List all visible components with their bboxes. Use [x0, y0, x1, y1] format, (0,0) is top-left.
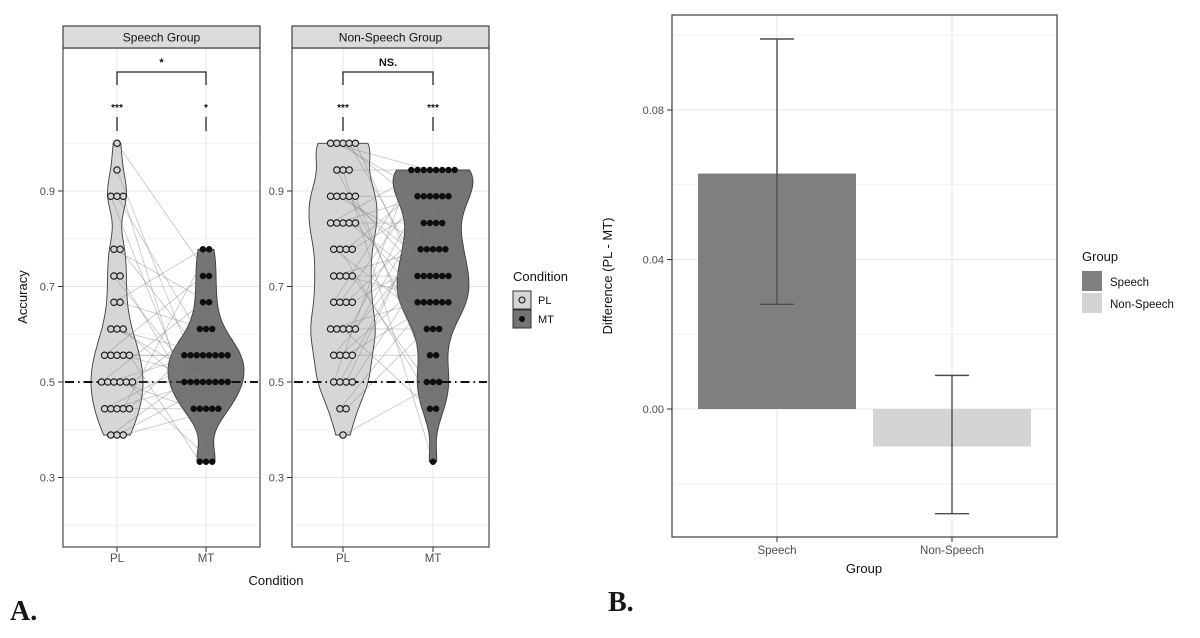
facet-strip-title: Non-Speech Group: [339, 31, 443, 45]
data-point-pl: [108, 432, 114, 438]
data-point-mt: [194, 379, 200, 385]
data-point-mt: [421, 299, 427, 305]
y-tick-label: 0.08: [643, 105, 664, 117]
data-point-mt: [445, 193, 451, 199]
data-point-pl: [337, 299, 343, 305]
data-point-pl: [117, 273, 123, 279]
x-tick-label: PL: [336, 553, 351, 565]
data-point-mt: [421, 193, 427, 199]
data-point-mt: [218, 352, 224, 358]
data-point-pl: [120, 193, 126, 199]
data-point-pl: [114, 326, 120, 332]
x-tick-label: MT: [198, 553, 215, 565]
x-axis: PLMT: [110, 547, 214, 565]
data-point-pl: [337, 246, 343, 252]
data-point-pl: [337, 406, 343, 412]
significance-between-label: NS.: [379, 57, 397, 69]
data-point-mt: [439, 273, 445, 279]
significance-pl-label: ***: [111, 103, 123, 114]
panel-b: 0.000.040.08SpeechNon-SpeechGroupDiffere…: [600, 15, 1174, 576]
legend-key-pl-glyph: [519, 297, 525, 303]
y-tick-label: 0.04: [643, 255, 664, 267]
data-point-mt: [206, 299, 212, 305]
data-point-mt: [439, 193, 445, 199]
data-point-mt: [190, 406, 196, 412]
data-point-pl: [114, 167, 120, 173]
data-point-mt: [421, 273, 427, 279]
data-point-mt: [427, 193, 433, 199]
data-point-pl: [340, 167, 346, 173]
data-point-mt: [430, 246, 436, 252]
data-point-mt: [430, 459, 436, 465]
data-point-pl: [352, 220, 358, 226]
data-point-mt: [436, 379, 442, 385]
data-point-mt: [206, 352, 212, 358]
data-point-pl: [114, 432, 120, 438]
y-axis: 0.000.040.08: [643, 105, 672, 416]
data-point-mt: [427, 352, 433, 358]
data-point-pl: [114, 406, 120, 412]
panel-background: [63, 48, 260, 547]
data-point-pl: [331, 379, 337, 385]
data-point-mt: [436, 246, 442, 252]
data-point-mt: [187, 379, 193, 385]
data-point-mt: [414, 299, 420, 305]
data-point-pl: [337, 352, 343, 358]
data-point-mt: [203, 459, 209, 465]
data-point-pl: [101, 406, 107, 412]
legend-key-speech: [1082, 271, 1102, 291]
y-tick-label: 0.3: [269, 473, 284, 485]
data-point-pl: [114, 352, 120, 358]
x-axis-title-group: Group: [846, 561, 882, 576]
significance-pl-label: ***: [337, 103, 349, 114]
data-point-pl: [334, 220, 340, 226]
data-point-pl: [337, 379, 343, 385]
y-tick-label: 0.5: [269, 377, 284, 389]
data-point-mt: [215, 406, 221, 412]
y-axis: 0.30.50.70.9: [269, 186, 292, 485]
data-point-mt: [187, 352, 193, 358]
data-point-mt: [427, 299, 433, 305]
data-point-mt: [181, 352, 187, 358]
x-axis: PLMT: [336, 547, 441, 565]
data-point-mt: [181, 379, 187, 385]
data-point-pl: [331, 352, 337, 358]
data-point-mt: [421, 220, 427, 226]
significance-mt-label: *: [204, 103, 208, 114]
data-point-mt: [209, 406, 215, 412]
data-point-pl: [126, 406, 132, 412]
y-axis-title-difference: Difference (PL - MT): [600, 217, 615, 334]
y-axis: 0.30.50.70.9: [40, 186, 63, 485]
data-point-pl: [349, 352, 355, 358]
data-point-pl: [334, 326, 340, 332]
y-tick-label: 0.9: [40, 186, 55, 198]
data-point-pl: [111, 299, 117, 305]
data-point-mt: [197, 326, 203, 332]
data-point-mt: [433, 193, 439, 199]
data-point-pl: [346, 220, 352, 226]
data-point-mt: [200, 352, 206, 358]
data-point-mt: [424, 246, 430, 252]
data-point-mt: [200, 379, 206, 385]
data-point-pl: [346, 167, 352, 173]
data-point-mt: [439, 299, 445, 305]
legend-label-mt: MT: [538, 314, 554, 326]
data-point-pl: [108, 406, 114, 412]
data-point-pl: [111, 246, 117, 252]
data-point-pl: [117, 299, 123, 305]
data-point-pl: [120, 326, 126, 332]
data-point-pl: [346, 326, 352, 332]
legend-group-title: Group: [1082, 249, 1118, 264]
data-point-mt: [436, 326, 442, 332]
x-tick-label: PL: [110, 553, 125, 565]
data-point-pl: [349, 299, 355, 305]
data-point-pl: [108, 352, 114, 358]
figure-svg: *****Speech Group0.30.50.70.9PLMTNS.****…: [0, 0, 1200, 638]
facet-strip-title: Speech Group: [123, 31, 201, 45]
data-point-pl: [340, 326, 346, 332]
data-point-mt: [197, 406, 203, 412]
legend-label-pl: PL: [538, 295, 551, 307]
data-point-pl: [108, 326, 114, 332]
data-point-pl: [117, 246, 123, 252]
data-point-pl: [343, 406, 349, 412]
y-tick-label: 0.00: [643, 404, 664, 416]
data-point-pl: [331, 246, 337, 252]
data-point-mt: [452, 167, 458, 173]
data-point-mt: [209, 326, 215, 332]
data-point-pl: [352, 326, 358, 332]
data-point-pl: [108, 193, 114, 199]
data-point-pl: [349, 273, 355, 279]
data-point-mt: [206, 379, 212, 385]
data-point-pl: [123, 379, 129, 385]
data-point-pl: [101, 352, 107, 358]
data-point-pl: [340, 140, 346, 146]
data-point-mt: [417, 246, 423, 252]
data-point-mt: [206, 246, 212, 252]
data-point-mt: [433, 220, 439, 226]
data-point-pl: [346, 140, 352, 146]
data-point-pl: [111, 379, 117, 385]
panel-b-letter: B.: [608, 589, 634, 617]
data-point-pl: [340, 193, 346, 199]
data-point-pl: [105, 379, 111, 385]
data-point-pl: [352, 193, 358, 199]
data-point-mt: [414, 273, 420, 279]
data-point-pl: [352, 140, 358, 146]
legend-key-mt-glyph: [519, 316, 525, 322]
x-axis-title-condition: Condition: [249, 573, 304, 588]
significance-between-label: *: [159, 57, 164, 69]
data-point-mt: [445, 299, 451, 305]
data-point-mt: [424, 379, 430, 385]
data-point-mt: [212, 352, 218, 358]
y-tick-label: 0.3: [40, 473, 55, 485]
figure-container: *****Speech Group0.30.50.70.9PLMTNS.****…: [0, 0, 1200, 638]
data-point-mt: [414, 167, 420, 173]
data-point-mt: [200, 246, 206, 252]
data-point-mt: [433, 273, 439, 279]
data-point-mt: [442, 246, 448, 252]
data-point-pl: [349, 379, 355, 385]
data-point-pl: [334, 193, 340, 199]
data-point-mt: [427, 167, 433, 173]
data-point-pl: [349, 246, 355, 252]
x-tick-label: Non-Speech: [920, 545, 984, 557]
data-point-mt: [433, 406, 439, 412]
data-point-mt: [200, 273, 206, 279]
legend-condition-title: Condition: [513, 269, 568, 284]
y-axis-title-accuracy: Accuracy: [15, 270, 30, 324]
data-point-pl: [346, 193, 352, 199]
data-point-mt: [197, 459, 203, 465]
data-point-mt: [439, 220, 445, 226]
data-point-pl: [340, 220, 346, 226]
legend-label-speech: Speech: [1110, 277, 1149, 289]
data-point-pl: [343, 352, 349, 358]
data-point-mt: [427, 273, 433, 279]
x-axis: SpeechNon-Speech: [757, 537, 983, 557]
data-point-pl: [337, 273, 343, 279]
data-point-pl: [331, 299, 337, 305]
y-tick-label: 0.7: [269, 282, 284, 294]
data-point-pl: [334, 167, 340, 173]
data-point-mt: [445, 273, 451, 279]
data-point-pl: [126, 352, 132, 358]
data-point-mt: [433, 352, 439, 358]
data-point-pl: [117, 379, 123, 385]
data-point-pl: [111, 273, 117, 279]
data-point-mt: [408, 167, 414, 173]
legend-group: GroupSpeechNon-Speech: [1082, 249, 1174, 313]
facet-speech-group: *****Speech Group0.30.50.70.9PLMT: [40, 26, 260, 565]
data-point-mt: [203, 326, 209, 332]
data-point-pl: [343, 246, 349, 252]
data-point-mt: [225, 352, 231, 358]
data-point-mt: [414, 193, 420, 199]
data-point-pl: [327, 220, 333, 226]
data-point-pl: [120, 432, 126, 438]
data-point-pl: [120, 406, 126, 412]
data-point-pl: [114, 140, 120, 146]
y-tick-label: 0.5: [40, 377, 55, 389]
data-point-mt: [203, 406, 209, 412]
data-point-mt: [445, 167, 451, 173]
y-tick-label: 0.9: [269, 186, 284, 198]
data-point-mt: [433, 299, 439, 305]
data-point-mt: [427, 220, 433, 226]
panel-a: *****Speech Group0.30.50.70.9PLMTNS.****…: [15, 26, 568, 588]
data-point-pl: [129, 379, 135, 385]
data-point-mt: [206, 273, 212, 279]
data-point-mt: [427, 406, 433, 412]
data-point-pl: [340, 432, 346, 438]
data-point-mt: [225, 379, 231, 385]
panel-a-letter: A.: [10, 598, 37, 626]
data-point-pl: [343, 299, 349, 305]
data-point-mt: [430, 326, 436, 332]
data-point-mt: [439, 167, 445, 173]
data-point-pl: [327, 326, 333, 332]
x-tick-label: Speech: [757, 545, 796, 557]
data-point-mt: [433, 167, 439, 173]
data-point-mt: [194, 352, 200, 358]
data-point-mt: [218, 379, 224, 385]
legend-key-non-speech: [1082, 293, 1102, 313]
legend-condition: ConditionPLMT: [513, 269, 568, 328]
significance-mt-label: ***: [427, 103, 439, 114]
data-point-pl: [114, 193, 120, 199]
data-point-mt: [209, 459, 215, 465]
facet-non-speech-group: NS.******Non-Speech Group0.30.50.70.9PLM…: [269, 26, 489, 565]
data-point-pl: [334, 140, 340, 146]
data-point-mt: [424, 326, 430, 332]
data-point-pl: [343, 379, 349, 385]
data-point-mt: [212, 379, 218, 385]
data-point-pl: [327, 193, 333, 199]
data-point-mt: [200, 299, 206, 305]
data-point-pl: [331, 273, 337, 279]
legend-label-non-speech: Non-Speech: [1110, 299, 1174, 311]
data-point-pl: [98, 379, 104, 385]
y-tick-label: 0.7: [40, 282, 55, 294]
data-point-mt: [421, 167, 427, 173]
data-point-mt: [430, 379, 436, 385]
data-point-pl: [120, 352, 126, 358]
x-tick-label: MT: [425, 553, 442, 565]
data-point-pl: [343, 273, 349, 279]
data-point-pl: [327, 140, 333, 146]
